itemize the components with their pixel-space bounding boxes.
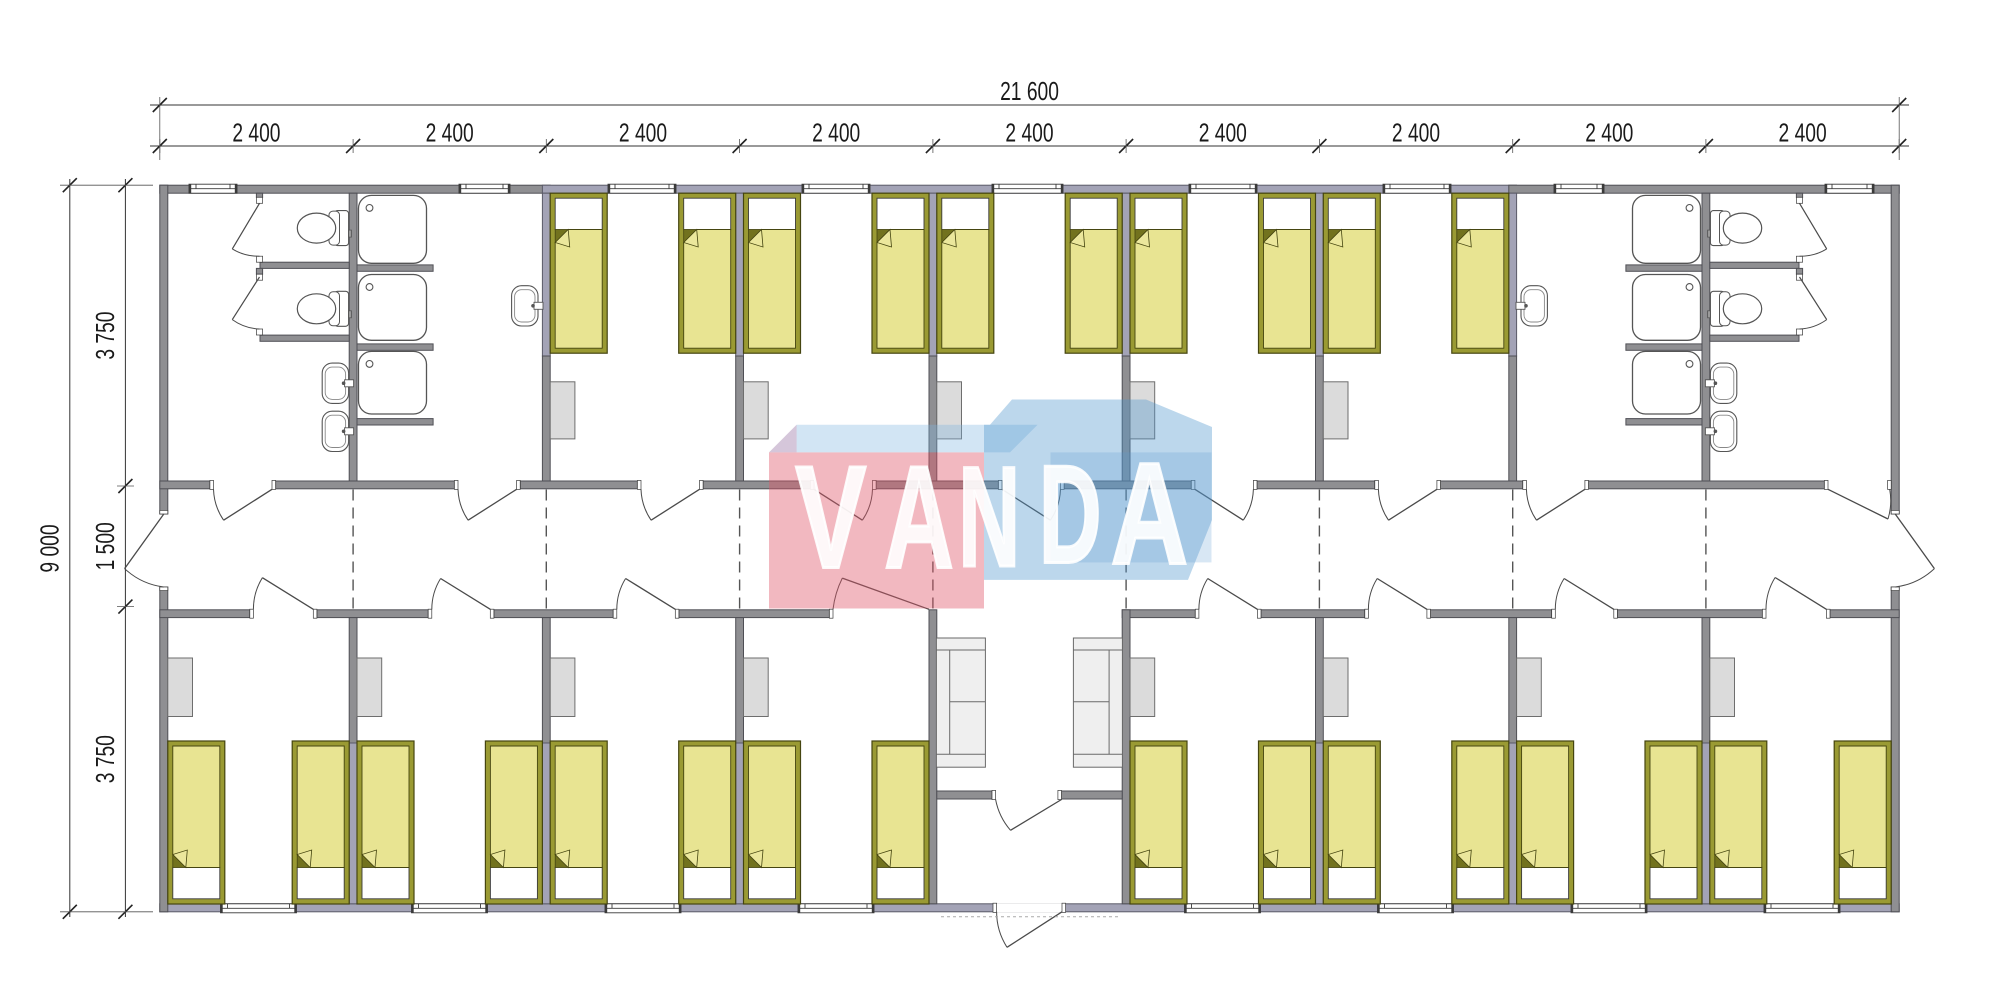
svg-text:2 400: 2 400 (1005, 118, 1053, 148)
svg-text:3 750: 3 750 (90, 312, 120, 360)
svg-text:V: V (795, 436, 866, 599)
svg-text:A: A (1111, 434, 1188, 595)
svg-text:1 500: 1 500 (90, 522, 120, 570)
svg-text:2 400: 2 400 (619, 118, 667, 148)
svg-text:2 400: 2 400 (1779, 118, 1827, 148)
svg-text:N: N (958, 436, 1020, 596)
svg-text:2 400: 2 400 (426, 118, 474, 148)
svg-text:2 400: 2 400 (232, 118, 280, 148)
svg-text:3 750: 3 750 (90, 735, 120, 783)
svg-text:2 400: 2 400 (1585, 118, 1633, 148)
svg-text:D: D (1039, 436, 1102, 592)
svg-text:21 600: 21 600 (1000, 76, 1059, 106)
svg-text:9 000: 9 000 (35, 524, 65, 572)
svg-text:2 400: 2 400 (1392, 118, 1440, 148)
svg-text:2 400: 2 400 (1199, 118, 1247, 148)
svg-text:A: A (884, 436, 954, 599)
svg-text:2 400: 2 400 (812, 118, 860, 148)
